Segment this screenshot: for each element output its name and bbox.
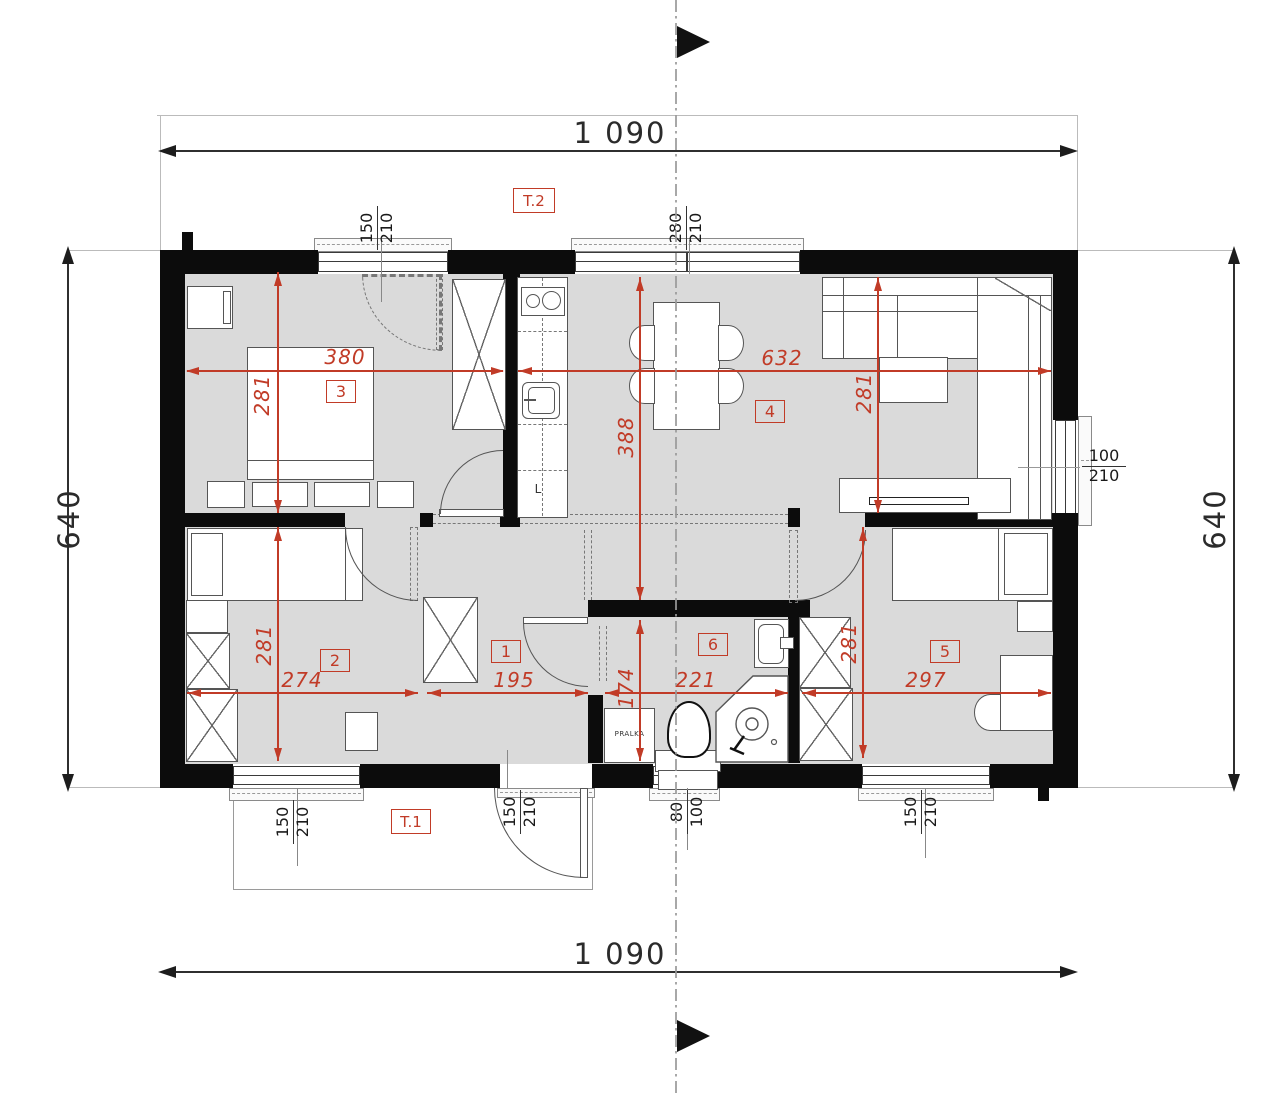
burner-circle [526, 294, 540, 308]
extension-line [1077, 115, 1078, 250]
wall-segment [712, 764, 862, 788]
room-number-6: 6 [698, 633, 728, 656]
leader-line [1018, 467, 1080, 468]
room-number-1: 1 [491, 640, 521, 663]
tv [869, 497, 969, 505]
coffee-table [879, 357, 948, 403]
dim-arrow [62, 774, 74, 792]
dim-arrow [859, 528, 867, 541]
toilet [667, 701, 711, 758]
wall-bathroom-top [588, 600, 810, 617]
extension-line [1078, 787, 1234, 788]
dining-chair [629, 368, 655, 404]
dim-line [862, 527, 864, 758]
dim-arrow [491, 367, 504, 375]
pillow [191, 533, 223, 596]
wardrobe [423, 597, 478, 683]
room-number-4: 4 [755, 400, 785, 423]
nightstand [207, 481, 245, 508]
dim-arrow [188, 689, 201, 697]
bedroom2-window [233, 766, 360, 785]
dim-bedroom5-height: 281 [838, 613, 860, 673]
dim-line [427, 692, 588, 694]
dim-line [518, 370, 1051, 372]
north-flag-icon [677, 26, 710, 58]
dim-line-bottom [170, 971, 1066, 973]
dim-line [187, 692, 418, 694]
wall-stub [1038, 788, 1049, 801]
sofa-armrest-line [843, 277, 844, 359]
wall-segment [448, 250, 575, 274]
dim-line [802, 692, 1051, 694]
dim-line [187, 370, 503, 372]
wall-segment [160, 764, 233, 788]
opening-dash [584, 530, 585, 600]
dim-arrow [1038, 689, 1051, 697]
dim-arrow [1060, 145, 1078, 157]
dim-arrow [274, 528, 282, 541]
center-axis-line [675, 0, 677, 1093]
dining-chair [629, 325, 655, 361]
dim-arrow [186, 367, 199, 375]
opening-dash [520, 523, 788, 524]
nightstand [377, 481, 414, 508]
dim-arrow [158, 966, 176, 978]
dim-bedroom3-width: 380 [315, 346, 375, 368]
wall-segment [1053, 250, 1078, 420]
dim-line [277, 527, 279, 761]
extension-line [67, 250, 160, 251]
washbasin-tap [780, 637, 794, 649]
pillow [314, 482, 370, 507]
dim-line [277, 272, 279, 513]
pillow [1004, 533, 1048, 595]
dim-arrow [428, 689, 441, 697]
wall-segment [185, 513, 345, 527]
dim-line-top [170, 150, 1066, 152]
window-size-living-top: 280210 [666, 198, 706, 258]
dim-arrow [859, 745, 867, 758]
counter-dash [518, 470, 567, 471]
window-size-bedroom5: 150210 [901, 782, 941, 842]
dim-arrow [874, 500, 882, 513]
sofa-cushion-line [822, 311, 977, 312]
dresser-inner [223, 291, 231, 324]
dim-arrow [405, 689, 418, 697]
sofa-cushion-line [897, 295, 898, 359]
blanket-line [998, 528, 999, 601]
dining-table [653, 302, 720, 430]
blanket-line [247, 460, 374, 461]
window-size-bathroom: 80100 [667, 782, 707, 842]
dim-living-depth: 388 [615, 407, 637, 467]
dim-hall-width: 195 [484, 669, 544, 691]
wardrobe [186, 689, 238, 762]
extension-line [67, 787, 160, 788]
dim-line [639, 620, 641, 761]
sink-tap [524, 399, 536, 401]
opening-dash [591, 530, 592, 600]
dim-arrow [158, 145, 176, 157]
wardrobe [799, 688, 853, 761]
window-size-living-side: 100210 [1080, 444, 1128, 488]
dim-arrow [1228, 774, 1240, 792]
dim-arrow [636, 621, 644, 634]
dim-arrow [775, 689, 788, 697]
wall-segment [800, 250, 1078, 274]
dim-arrow [274, 748, 282, 761]
dim-bedroom3-height: 281 [251, 365, 273, 425]
dim-bedroom2-height: 281 [253, 615, 275, 675]
wall-segment [160, 250, 185, 788]
fridge-label: L [528, 480, 548, 498]
burner-circle [542, 291, 561, 310]
wall-stub [182, 232, 193, 250]
sofa-cushion-line [1028, 295, 1029, 520]
desk-small [345, 712, 378, 751]
floor-plan-canvas: L PRALKA [0, 0, 1280, 1093]
tv-cabinet [839, 478, 1011, 513]
south-flag-icon [677, 1020, 710, 1052]
shelf [186, 600, 228, 633]
nightstand [1017, 601, 1053, 632]
washing-machine-label: PRALKA [604, 728, 655, 740]
dim-arrow [803, 689, 816, 697]
sofa-corner-diagonal [995, 278, 1051, 311]
dim-arrow [519, 367, 532, 375]
dim-arrow [636, 748, 644, 761]
dim-living-height: 281 [853, 363, 875, 423]
living-side-window [1055, 420, 1076, 522]
dim-line [639, 277, 641, 600]
dim-line [877, 277, 879, 513]
overall-height-right: 640 [1181, 464, 1249, 574]
wall-segment [360, 764, 500, 788]
dim-arrow [575, 689, 588, 697]
extension-line [1078, 250, 1234, 251]
dim-arrow [274, 273, 282, 286]
opening-dash [599, 626, 600, 681]
dim-bathroom-height: 174 [615, 658, 637, 718]
terrace-label-t2: T.2 [513, 188, 555, 213]
dim-arrow [1060, 966, 1078, 978]
opening-dash [606, 626, 607, 681]
dim-arrow [874, 278, 882, 291]
counter-dash [518, 424, 567, 425]
wall-segment [420, 513, 433, 527]
wall-bathroom-west [588, 695, 603, 763]
terrace-label-t1: T.1 [391, 809, 431, 834]
room-number-2: 2 [320, 649, 350, 672]
dim-arrow [636, 278, 644, 291]
extension-line [160, 115, 161, 250]
wardrobe [186, 633, 230, 689]
opening-dash [433, 523, 500, 524]
overall-height-left: 640 [35, 464, 103, 574]
counter-dash [518, 331, 567, 332]
room-number-5: 5 [930, 640, 960, 663]
dim-arrow [62, 246, 74, 264]
wardrobe [452, 279, 506, 430]
window-size-balcony3: 150210 [357, 198, 397, 258]
window-size-entry: 150210 [500, 782, 540, 842]
wall-segment [592, 764, 653, 788]
wall-segment [1053, 522, 1078, 788]
desk-chair [974, 694, 1001, 731]
dim-bedroom2-width: 274 [272, 669, 332, 691]
dim-arrow [636, 587, 644, 600]
sofa-cushion-line [1040, 295, 1041, 520]
dim-arrow [1228, 246, 1240, 264]
room-number-3: 3 [326, 380, 356, 403]
window-size-bedroom2: 150210 [273, 792, 313, 852]
dim-living-width: 632 [752, 347, 812, 369]
dim-arrow [1038, 367, 1051, 375]
dim-bedroom5-width: 297 [896, 669, 956, 691]
wall-segment [788, 508, 800, 527]
dim-arrow [274, 500, 282, 513]
wall-segment [990, 764, 1078, 788]
